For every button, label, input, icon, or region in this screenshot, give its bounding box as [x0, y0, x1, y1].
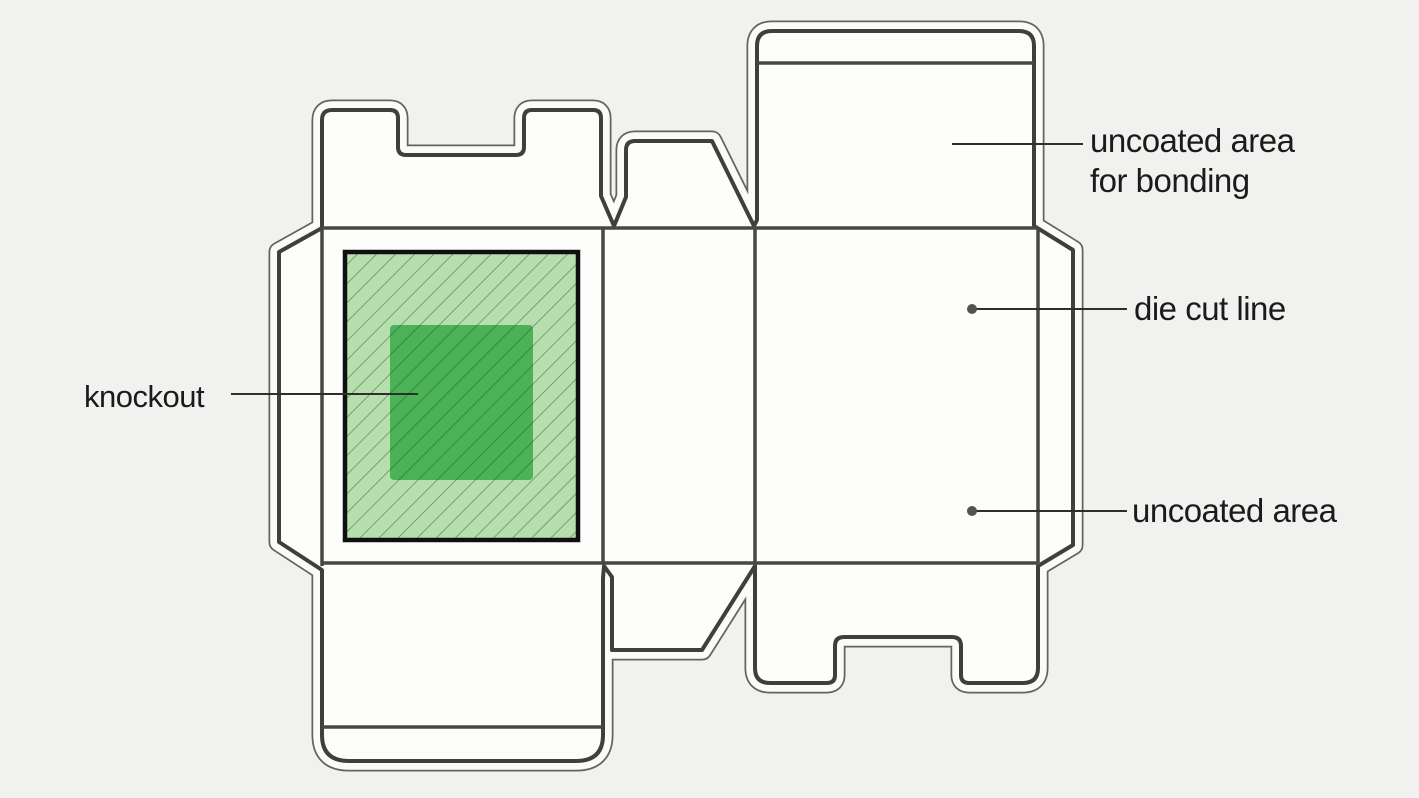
knockout-hatch: [345, 252, 578, 540]
label-die-cut-line: die cut line: [1134, 289, 1286, 329]
leader-dot-die-cut: [967, 304, 977, 314]
label-uncoated-area-for-bonding: uncoated area for bonding: [1090, 121, 1295, 201]
dieline-diagram: [0, 0, 1419, 798]
label-uncoated-area: uncoated area: [1132, 491, 1337, 531]
label-knockout: knockout: [84, 377, 204, 417]
knockout-area: [345, 252, 578, 540]
dieline-figure: knockout uncoated area for bonding die c…: [0, 0, 1419, 798]
leader-dot-uncoated: [967, 506, 977, 516]
label-uncoated-area-for-bonding-line2: for bonding: [1090, 161, 1295, 201]
label-uncoated-area-for-bonding-line1: uncoated area: [1090, 121, 1295, 161]
